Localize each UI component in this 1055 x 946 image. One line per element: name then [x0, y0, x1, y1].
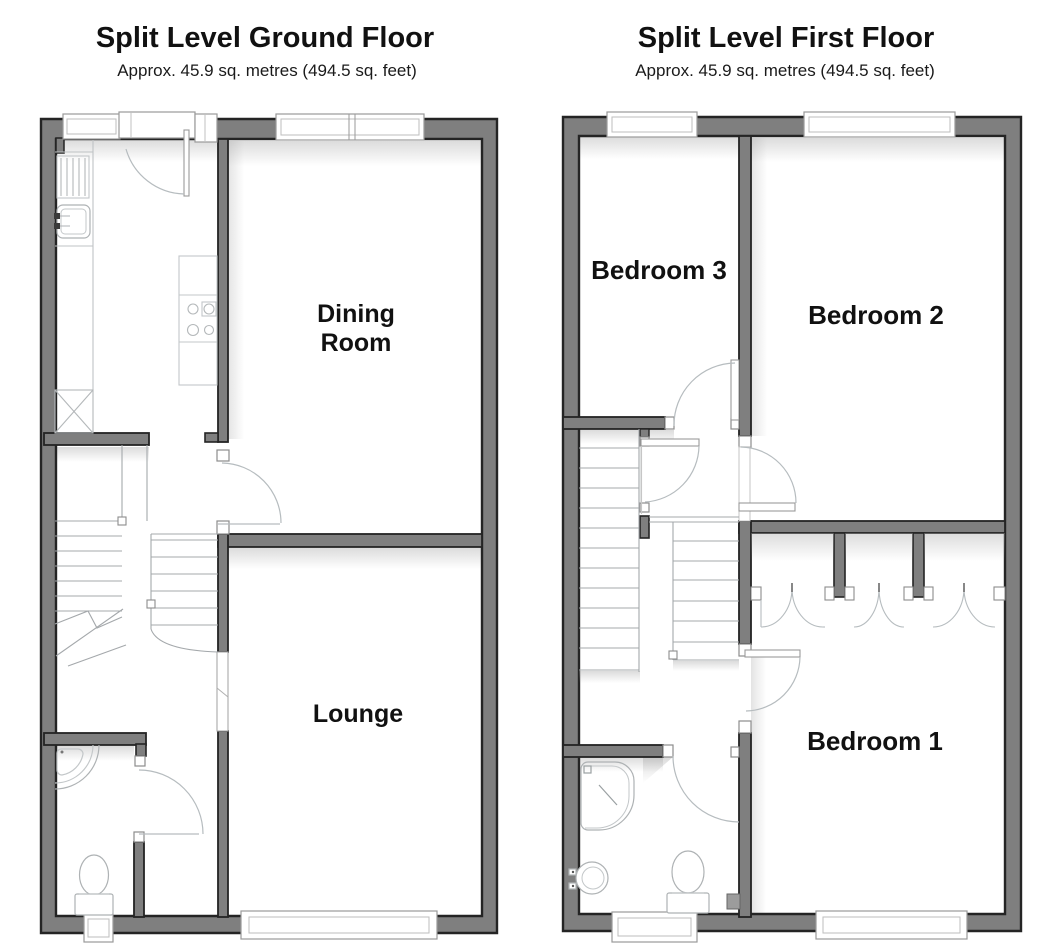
svg-text:Dining: Dining [317, 300, 395, 328]
svg-text:Room: Room [321, 329, 392, 357]
svg-text:Bedroom 3: Bedroom 3 [591, 255, 727, 285]
svg-text:Lounge: Lounge [313, 700, 403, 728]
svg-text:Bedroom 1: Bedroom 1 [807, 726, 943, 756]
svg-text:Approx. 45.9 sq. metres (494.5: Approx. 45.9 sq. metres (494.5 sq. feet) [117, 61, 417, 80]
svg-text:Split Level Ground Floor: Split Level Ground Floor [96, 22, 434, 54]
svg-text:Split Level First Floor: Split Level First Floor [638, 22, 935, 54]
svg-text:Approx. 45.9 sq. metres (494.5: Approx. 45.9 sq. metres (494.5 sq. feet) [635, 61, 935, 80]
svg-text:Bedroom 2: Bedroom 2 [808, 300, 944, 330]
